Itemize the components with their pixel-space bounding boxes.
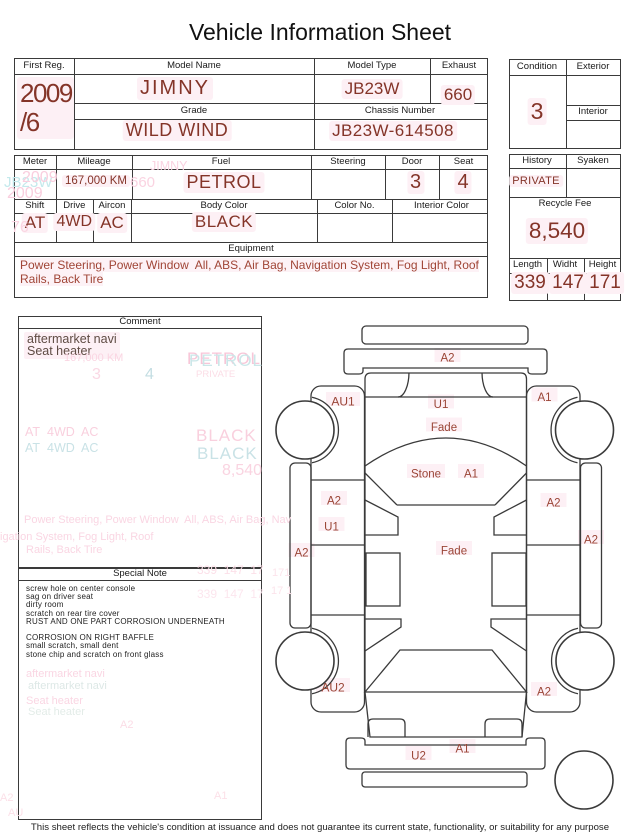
svg-text:U1: U1 [434,399,449,411]
svg-text:AU1: AU1 [331,395,355,409]
svg-text:A2: A2 [294,548,308,560]
svg-text:Stone: Stone [411,469,441,481]
svg-text:A1: A1 [537,392,551,404]
svg-text:A2: A2 [546,498,560,510]
svg-text:A2: A2 [440,353,454,365]
svg-text:Fade: Fade [431,422,457,434]
svg-text:Fade: Fade [441,546,467,558]
svg-text:A1: A1 [455,744,469,756]
svg-text:U2: U2 [411,751,426,763]
svg-text:AU2: AU2 [321,681,345,695]
svg-text:U1: U1 [324,522,339,534]
svg-text:A2: A2 [584,535,598,547]
svg-text:A2: A2 [537,687,551,699]
svg-text:A2: A2 [327,496,341,508]
svg-text:A1: A1 [464,469,478,481]
